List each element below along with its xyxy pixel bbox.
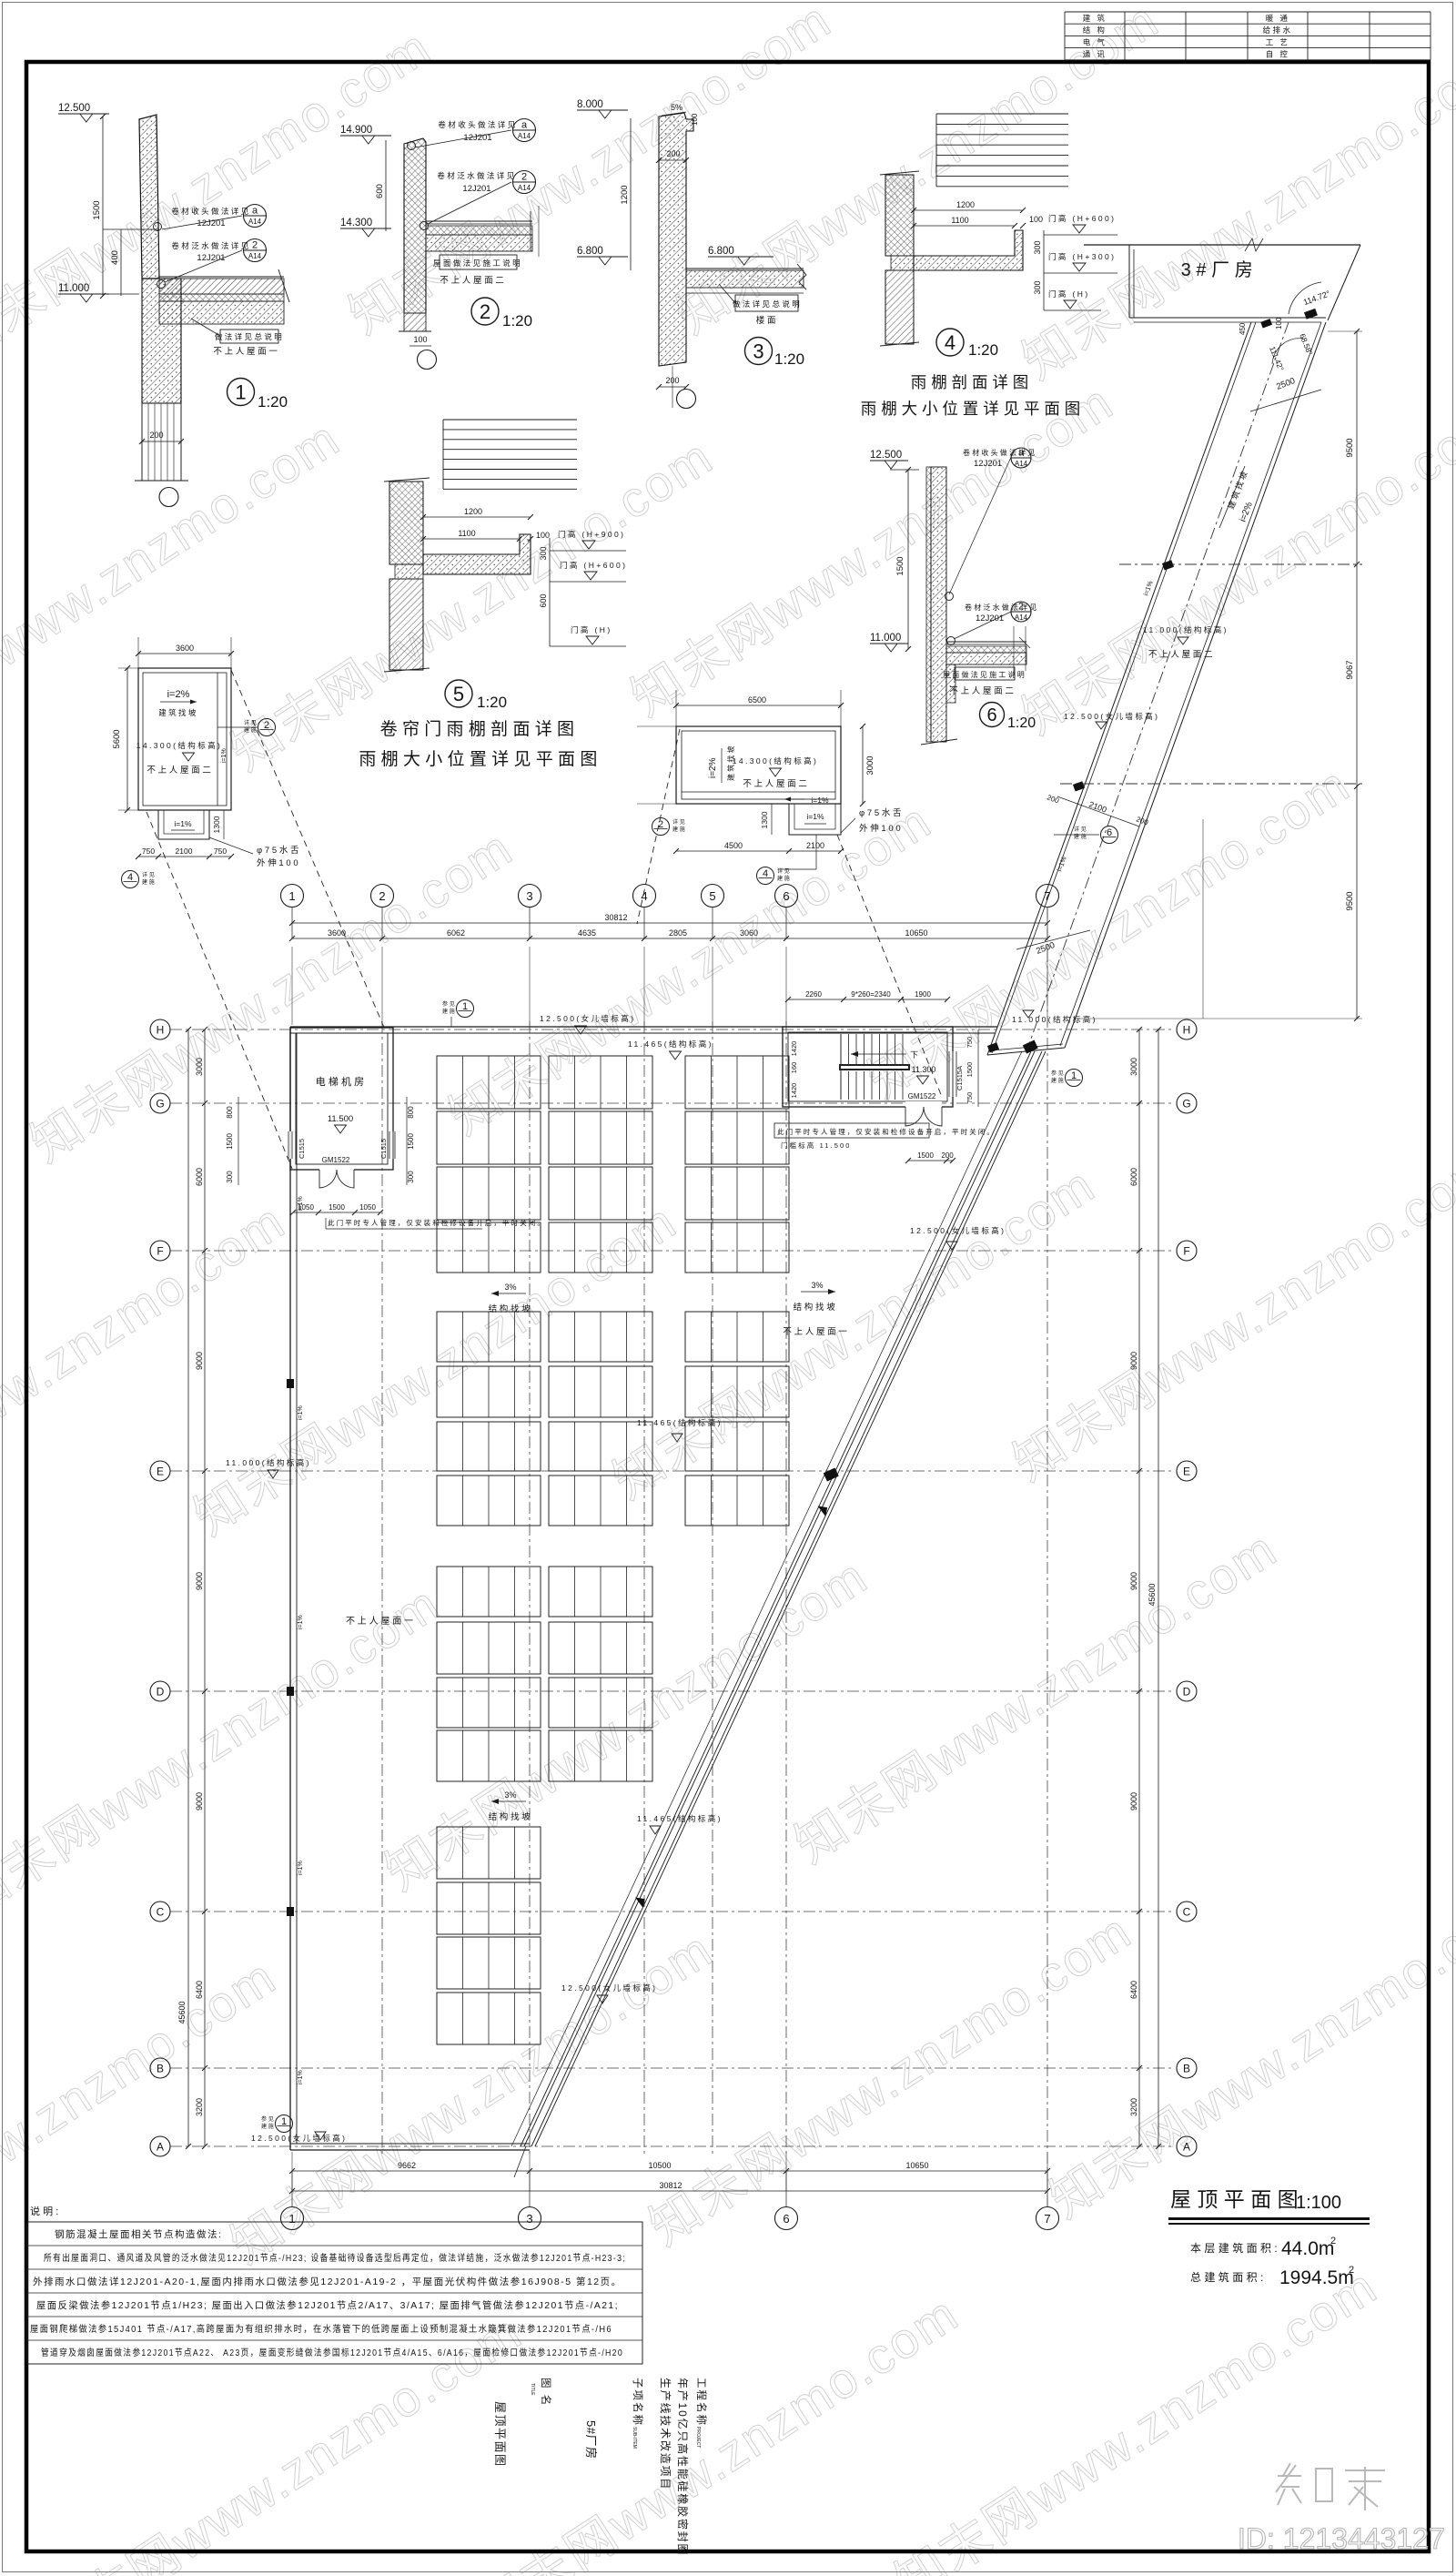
svg-text:1: 1 (462, 1001, 468, 1012)
svg-text:6000: 6000 (1129, 1168, 1138, 1186)
svg-text:下: 下 (910, 1050, 921, 1060)
svg-text:G: G (1182, 1098, 1190, 1111)
svg-text:30812: 30812 (659, 2181, 682, 2190)
svg-text:门高 (H+300): 门高 (H+300) (1048, 252, 1116, 261)
svg-text:门槛标高 11.500: 门槛标高 11.500 (781, 1141, 852, 1150)
svg-text:屋面做法见施工说明: 屋面做法见施工说明 (433, 259, 522, 268)
svg-text:子项名称: 子项名称 (632, 2378, 644, 2427)
svg-text:1100: 1100 (951, 216, 968, 225)
svg-text:φ75水舌: φ75水舌 (859, 807, 904, 818)
svg-text:说明:: 说明: (30, 2205, 61, 2217)
svg-text:9000: 9000 (195, 1792, 204, 1810)
svg-text:A14: A14 (1015, 460, 1028, 468)
svg-text:5: 5 (709, 889, 715, 903)
svg-text:详见: 详见 (244, 719, 258, 726)
svg-text:a: a (521, 120, 528, 131)
svg-text:H: H (1183, 1024, 1191, 1037)
svg-text:C: C (1183, 1906, 1191, 1919)
svg-text:外伸100: 外伸100 (859, 823, 903, 834)
svg-text:A14: A14 (518, 132, 531, 140)
svg-text:11.000: 11.000 (870, 633, 901, 644)
svg-text:1: 1 (288, 2212, 295, 2226)
svg-text:总建筑面积:: 总建筑面积: (1190, 2270, 1267, 2284)
svg-text:A: A (1183, 2141, 1190, 2154)
svg-text:11.000(结构标高): 11.000(结构标高) (1012, 1015, 1097, 1024)
svg-text:7: 7 (1044, 889, 1050, 903)
svg-text:1300: 1300 (760, 811, 769, 828)
svg-text:卷材收头做法详见: 卷材收头做法详见 (171, 207, 250, 216)
svg-text:外伸100: 外伸100 (257, 857, 300, 868)
svg-text:C1515A: C1515A (955, 1066, 964, 1090)
svg-text:2: 2 (1349, 2265, 1354, 2276)
svg-text:1: 1 (288, 889, 295, 903)
svg-text:6: 6 (783, 2212, 789, 2226)
svg-text:E: E (1183, 1465, 1190, 1478)
svg-text:14.300: 14.300 (340, 218, 372, 228)
svg-text:E: E (157, 1465, 164, 1478)
svg-text:2: 2 (264, 720, 269, 731)
svg-text:C1515: C1515 (379, 1139, 388, 1159)
svg-text:300: 300 (407, 1171, 415, 1183)
svg-text:6062: 6062 (447, 928, 465, 938)
svg-text:B: B (1183, 2063, 1190, 2075)
svg-text:100: 100 (413, 335, 427, 344)
svg-text:12.500(女儿墙标高): 12.500(女儿墙标高) (561, 1983, 657, 1993)
svg-text:100: 100 (691, 113, 699, 126)
svg-text:3200: 3200 (1129, 2098, 1138, 2116)
svg-text:自 控: 自 控 (1266, 50, 1290, 59)
svg-text:雨棚大小位置详见平面图: 雨棚大小位置详见平面图 (861, 400, 1085, 418)
svg-text:11.465(结构标高): 11.465(结构标高) (628, 1040, 713, 1049)
svg-text:卷帘门雨棚剖面详图: 卷帘门雨棚剖面详图 (380, 719, 580, 739)
svg-text:9067: 9067 (1345, 660, 1355, 679)
svg-text:12J201: 12J201 (974, 459, 1002, 469)
svg-text:12.500(女儿墙标高): 12.500(女儿墙标高) (540, 1014, 635, 1023)
svg-text:A14: A14 (248, 252, 262, 260)
svg-text:10650: 10650 (905, 2161, 928, 2170)
svg-text:电梯机房: 电梯机房 (316, 1075, 367, 1088)
svg-text:SUB-ITEM: SUB-ITEM (632, 2427, 637, 2449)
svg-text:3060: 3060 (740, 928, 758, 938)
svg-text:30812: 30812 (604, 913, 627, 922)
svg-text:通 讯: 通 讯 (1083, 50, 1107, 59)
svg-text:工 艺: 工 艺 (1266, 37, 1290, 46)
svg-text:4: 4 (641, 889, 647, 903)
svg-text:不上人屋面二: 不上人屋面二 (147, 766, 213, 776)
svg-text:300: 300 (539, 546, 548, 560)
svg-text:1500: 1500 (329, 1203, 345, 1212)
svg-text:A14: A14 (1015, 614, 1028, 622)
svg-text:3000: 3000 (865, 756, 875, 775)
svg-text:C: C (157, 1906, 165, 1919)
svg-text:800: 800 (226, 1106, 234, 1119)
svg-text:10500: 10500 (648, 2161, 671, 2170)
svg-text:300: 300 (226, 1171, 234, 1183)
svg-text:建施: 建施 (777, 875, 791, 882)
svg-text:A: A (157, 2141, 164, 2154)
svg-text:GM1522: GM1522 (908, 1092, 936, 1100)
svg-text:不上人屋面二: 不上人屋面二 (1148, 650, 1215, 660)
svg-text:6: 6 (783, 889, 789, 903)
svg-text:a: a (252, 206, 258, 217)
svg-text:4: 4 (945, 331, 955, 354)
svg-text:11.465(结构标高): 11.465(结构标高) (637, 1418, 723, 1427)
svg-text:φ75水舌: φ75水舌 (257, 845, 301, 856)
svg-text:44.0m: 44.0m (1281, 2238, 1334, 2259)
svg-text:100: 100 (536, 531, 550, 540)
svg-text:卷材收头做法详见: 卷材收头做法详见 (438, 120, 517, 129)
svg-text:1994.5m: 1994.5m (1279, 2267, 1354, 2288)
svg-text:9000: 9000 (1129, 1792, 1138, 1810)
svg-text:11.500: 11.500 (328, 1114, 353, 1124)
svg-text:D: D (157, 1686, 165, 1699)
svg-text:不上人屋面一: 不上人屋面一 (346, 1616, 416, 1627)
svg-text:1:20: 1:20 (968, 341, 998, 359)
svg-text:3: 3 (526, 2212, 532, 2226)
svg-text:12.500: 12.500 (58, 103, 90, 114)
svg-text:5: 5 (453, 683, 464, 705)
svg-text:i=1%: i=1% (298, 1861, 304, 1875)
svg-text:9500: 9500 (1345, 891, 1355, 910)
svg-text:45600: 45600 (1148, 1583, 1157, 1606)
svg-text:给排水: 给排水 (1263, 25, 1293, 35)
svg-text:A14: A14 (518, 184, 531, 192)
svg-text:做法详见总说明: 做法详见总说明 (215, 332, 284, 341)
svg-text:8.000: 8.000 (577, 99, 603, 110)
svg-text:建施: 建施 (1051, 1077, 1065, 1084)
svg-text:1:20: 1:20 (774, 350, 804, 368)
svg-text:2100: 2100 (176, 847, 193, 856)
svg-text:电 气: 电 气 (1083, 37, 1107, 46)
svg-text:14.300(结构标高): 14.300(结构标高) (733, 756, 818, 766)
svg-text:i=1%: i=1% (298, 1405, 304, 1420)
svg-text:750: 750 (142, 847, 155, 856)
svg-text:不上人屋面二: 不上人屋面二 (949, 686, 1016, 696)
svg-text:屋面做法见施工说明: 屋面做法见施工说明 (943, 670, 1026, 679)
svg-text:屋面钢爬梯做法参15J401 节点-/A17,高跨屋面为有组: 屋面钢爬梯做法参15J401 节点-/A17,高跨屋面为有组织排水时，在水落管下… (30, 2323, 612, 2335)
svg-text:卷材泛水做法详见: 卷材泛水做法详见 (171, 241, 250, 250)
svg-text:600: 600 (375, 184, 385, 198)
svg-text:1500: 1500 (966, 1062, 974, 1078)
svg-text:2: 2 (1018, 602, 1024, 613)
svg-text:本层建筑面积:: 本层建筑面积: (1190, 2241, 1280, 2255)
svg-text:11.000(结构标高): 11.000(结构标高) (226, 1458, 311, 1467)
svg-text:750: 750 (214, 847, 227, 856)
svg-text:图 名: 图 名 (540, 2378, 552, 2407)
svg-text:3000: 3000 (195, 1058, 204, 1076)
svg-text:i=1%: i=1% (298, 2070, 304, 2084)
svg-text:F: F (157, 1245, 163, 1258)
svg-text:3000: 3000 (1129, 1058, 1138, 1076)
svg-text:45600: 45600 (177, 2001, 187, 2023)
svg-text:11.000(结构标高): 11.000(结构标高) (1143, 625, 1228, 634)
svg-text:9000: 9000 (195, 1572, 204, 1590)
svg-text:3: 3 (526, 889, 532, 903)
svg-text:i=2%: i=2% (167, 689, 190, 700)
svg-text:A14: A14 (248, 218, 262, 226)
svg-text:结构找坡: 结构找坡 (489, 1303, 533, 1314)
svg-text:11.000: 11.000 (58, 283, 89, 294)
svg-text:6500: 6500 (748, 695, 766, 705)
svg-text:6000: 6000 (195, 1168, 204, 1186)
svg-text:9000: 9000 (1129, 1352, 1138, 1370)
svg-text:3#厂房: 3#厂房 (1181, 259, 1259, 280)
svg-text:400: 400 (110, 250, 120, 265)
svg-text:不上人屋面二: 不上人屋面二 (743, 779, 809, 789)
svg-text:5%: 5% (671, 103, 682, 112)
svg-text:9*260=2340: 9*260=2340 (851, 990, 891, 999)
svg-text:300: 300 (1033, 280, 1042, 294)
svg-text:屋顶平面图: 屋顶平面图 (493, 2401, 507, 2468)
svg-text:建筑找坡: 建筑找坡 (158, 708, 198, 717)
svg-text:i=1%: i=1% (174, 819, 192, 828)
svg-text:9000: 9000 (195, 1352, 204, 1370)
svg-text:详见: 详见 (672, 818, 686, 826)
svg-text:9000: 9000 (1129, 1572, 1138, 1590)
svg-text:结 构: 结 构 (1083, 25, 1107, 35)
svg-text:10650: 10650 (905, 928, 927, 938)
svg-text:1500: 1500 (407, 1133, 415, 1150)
svg-text:11.300: 11.300 (912, 1065, 936, 1074)
svg-text:参见: 参见 (1051, 1070, 1065, 1077)
svg-text:生产线技术改造项目: 生产线技术改造项目 (659, 2378, 672, 2490)
svg-text:建 筑: 建 筑 (1083, 14, 1107, 23)
svg-text:GM1522: GM1522 (322, 1156, 350, 1164)
svg-text:1:100: 1:100 (1296, 2193, 1341, 2213)
svg-text:6: 6 (1107, 827, 1112, 838)
svg-text:1:20: 1:20 (477, 694, 507, 711)
svg-text:2260: 2260 (805, 990, 822, 999)
svg-text:详见: 详见 (777, 867, 791, 875)
svg-text:6400: 6400 (195, 1981, 204, 1999)
svg-text:600: 600 (539, 593, 548, 607)
svg-text:12J201: 12J201 (197, 253, 225, 263)
svg-text:门高 (H): 门高 (H) (1048, 289, 1090, 299)
svg-text:3200: 3200 (195, 2098, 204, 2116)
svg-text:参见: 参见 (261, 2115, 275, 2123)
svg-text:门高 (H+900): 门高 (H+900) (558, 530, 625, 539)
svg-text:建施: 建施 (442, 1008, 456, 1015)
svg-text:12.500: 12.500 (870, 450, 902, 461)
svg-text:楼面: 楼面 (756, 315, 778, 326)
svg-text:ID: 1213443127: ID: 1213443127 (1238, 2522, 1445, 2555)
svg-text:所有出屋面洞口、通风道及风管的泛水做法见12J201节点-/: 所有出屋面洞口、通风道及风管的泛水做法见12J201节点-/H23; 设备基础待… (44, 2252, 626, 2264)
svg-text:建施: 建施 (1074, 833, 1087, 840)
svg-text:1: 1 (235, 380, 246, 403)
svg-text:2100: 2100 (806, 841, 824, 850)
svg-text:B: B (157, 2063, 164, 2075)
svg-text:门高 (H+600): 门高 (H+600) (1048, 214, 1116, 223)
svg-text:12.500(女儿墙标高): 12.500(女儿墙标高) (1064, 712, 1159, 721)
svg-text:2: 2 (658, 819, 663, 830)
svg-text:4500: 4500 (724, 841, 743, 850)
svg-text:6400: 6400 (1129, 1981, 1138, 1999)
svg-text:不上人屋面二: 不上人屋面二 (440, 276, 506, 286)
svg-text:PROJECT: PROJECT (695, 2427, 701, 2448)
svg-text:3600: 3600 (328, 928, 346, 938)
svg-text:TITLE: TITLE (530, 2383, 535, 2396)
svg-text:200: 200 (941, 1151, 954, 1160)
svg-text:1420: 1420 (790, 1083, 798, 1099)
svg-text:300: 300 (1033, 240, 1042, 254)
svg-text:2: 2 (521, 172, 527, 183)
svg-text:1200: 1200 (956, 200, 975, 209)
svg-text:F: F (1183, 1245, 1189, 1258)
svg-text:2805: 2805 (669, 928, 687, 938)
svg-text:G: G (156, 1098, 164, 1111)
svg-text:钢筋混凝土屋面相关节点构造做法:: 钢筋混凝土屋面相关节点构造做法: (55, 2228, 222, 2240)
svg-text:H: H (157, 1024, 165, 1037)
svg-text:200: 200 (666, 149, 680, 158)
svg-text:雨棚剖面详图: 雨棚剖面详图 (911, 373, 1033, 391)
svg-text:1:20: 1:20 (258, 393, 288, 411)
svg-text:12.500(女儿墙标高): 12.500(女儿墙标高) (251, 2134, 347, 2143)
svg-text:1500: 1500 (895, 556, 905, 575)
svg-text:详见: 详见 (1074, 826, 1087, 833)
svg-text:11.465(结构标高): 11.465(结构标高) (637, 1814, 723, 1823)
svg-text:1500: 1500 (917, 1151, 934, 1160)
svg-text:C1515: C1515 (298, 1139, 306, 1159)
svg-text:3%: 3% (504, 1790, 516, 1800)
svg-text:100: 100 (1029, 215, 1043, 224)
svg-text:2: 2 (379, 889, 385, 903)
svg-text:1:20: 1:20 (502, 312, 532, 330)
svg-text:14.900: 14.900 (340, 125, 372, 136)
svg-text:门高 (H): 门高 (H) (571, 625, 612, 634)
svg-text:5#厂房: 5#厂房 (584, 2420, 598, 2459)
svg-text:屋面反梁做法参12J201节点1/H23; 屋面出入口做法参: 屋面反梁做法参12J201节点1/H23; 屋面出入口做法参12J201节点2/… (36, 2299, 619, 2311)
svg-text:14.300(结构标高): 14.300(结构标高) (136, 741, 222, 750)
svg-text:5600: 5600 (112, 729, 122, 748)
svg-text:1420: 1420 (790, 1041, 798, 1057)
svg-text:750: 750 (966, 1037, 974, 1049)
svg-text:1: 1 (1071, 1070, 1077, 1081)
svg-text:12J201: 12J201 (462, 184, 490, 194)
svg-text:450: 450 (1239, 322, 1247, 335)
svg-text:不上人屋面一: 不上人屋面一 (213, 347, 279, 357)
svg-text:4: 4 (127, 872, 133, 883)
svg-text:160: 160 (790, 1062, 798, 1074)
svg-text:参见: 参见 (442, 1000, 456, 1008)
svg-text:工程名称: 工程名称 (695, 2378, 708, 2427)
svg-text:1050: 1050 (359, 1203, 376, 1212)
svg-text:6.800: 6.800 (577, 246, 603, 257)
svg-text:结构找坡: 结构找坡 (489, 1811, 533, 1822)
svg-text:暖 通: 暖 通 (1266, 14, 1290, 23)
svg-text:7: 7 (1044, 2212, 1050, 2226)
svg-text:2: 2 (252, 240, 258, 251)
svg-text:1: 1 (281, 2116, 287, 2127)
svg-text:6.800: 6.800 (708, 246, 734, 257)
svg-text:i=2%: i=2% (708, 757, 718, 778)
svg-text:结构找坡: 结构找坡 (794, 1302, 838, 1313)
svg-text:200: 200 (149, 431, 163, 440)
svg-text:1:20: 1:20 (1007, 715, 1036, 731)
svg-text:6: 6 (986, 705, 996, 725)
svg-text:1200: 1200 (620, 185, 630, 204)
svg-text:门高 (H+600): 门高 (H+600) (560, 561, 627, 570)
svg-text:雨棚大小位置详见平面图: 雨棚大小位置详见平面图 (359, 749, 602, 769)
svg-text:做法详见总说明: 做法详见总说明 (733, 299, 802, 309)
svg-text:9500: 9500 (1345, 438, 1355, 457)
svg-text:年产10亿只高性能硅橡胶密封圈: 年产10亿只高性能硅橡胶密封圈 (676, 2378, 690, 2556)
svg-text:管道穿及烟囱屋面做法参12J201节点A22、 A23页，屋: 管道穿及烟囱屋面做法参12J201节点A22、 A23页，屋面变形缝做法参国标1… (41, 2347, 623, 2358)
svg-text:4635: 4635 (578, 928, 596, 938)
svg-text:建施: 建施 (672, 826, 686, 833)
svg-text:建施: 建施 (142, 878, 156, 886)
svg-text:1100: 1100 (458, 529, 475, 538)
svg-text:建施: 建施 (261, 2123, 275, 2130)
svg-text:100: 100 (1275, 317, 1283, 330)
svg-text:1200: 1200 (464, 507, 482, 516)
svg-text:i=1%: i=1% (221, 748, 227, 763)
svg-text:不上人屋面一: 不上人屋面一 (783, 1327, 849, 1337)
svg-text:D: D (1183, 1686, 1191, 1699)
svg-text:i=1%: i=1% (298, 1196, 304, 1211)
svg-text:1900: 1900 (915, 990, 931, 999)
svg-text:12J201: 12J201 (197, 218, 225, 228)
svg-text:1300: 1300 (212, 816, 221, 833)
svg-text:2: 2 (480, 300, 490, 323)
svg-text:外排雨水口做法详12J201-A20-1,屋面内排雨水口做法: 外排雨水口做法详12J201-A20-1,屋面内排雨水口做法参见12J201-A… (33, 2276, 622, 2287)
svg-text:1500: 1500 (92, 200, 102, 219)
svg-text:1500: 1500 (226, 1133, 234, 1150)
svg-text:屋顶平面图: 屋顶平面图 (1170, 2187, 1304, 2211)
svg-text:3600: 3600 (176, 644, 194, 653)
svg-text:3%: 3% (504, 1283, 516, 1292)
svg-text:9662: 9662 (398, 2161, 416, 2170)
svg-text:此门平时专人管理，仅安装和检修设备开启，平时关闭。: 此门平时专人管理，仅安装和检修设备开启，平时关闭。 (777, 1127, 996, 1136)
svg-text:a: a (1018, 448, 1025, 459)
svg-text:详见: 详见 (142, 871, 156, 878)
svg-text:卷材泛水做法详见: 卷材泛水做法详见 (437, 171, 516, 180)
svg-text:750: 750 (966, 1092, 974, 1104)
svg-text:12.500(女儿墙标高): 12.500(女儿墙标高) (910, 1226, 1006, 1235)
svg-text:i=1%: i=1% (298, 1615, 304, 1629)
svg-text:2: 2 (1330, 2236, 1336, 2246)
svg-text:i=1%: i=1% (806, 812, 824, 821)
svg-text:3%: 3% (811, 1281, 823, 1290)
svg-text:4: 4 (763, 868, 768, 879)
svg-text:800: 800 (407, 1106, 415, 1119)
svg-text:3: 3 (753, 340, 763, 362)
